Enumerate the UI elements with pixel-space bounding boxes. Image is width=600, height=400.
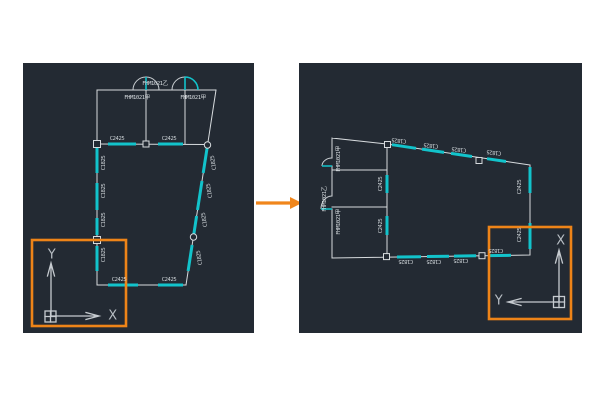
right-arrow-icon bbox=[254, 194, 304, 212]
window-label: C1825 bbox=[206, 183, 214, 198]
wall-junction-markers bbox=[94, 141, 211, 244]
window-label: C1825 bbox=[101, 156, 107, 171]
window-label: C2425 bbox=[378, 219, 384, 234]
door-label: FHM1021乙 bbox=[321, 185, 328, 211]
ucs-label: Y bbox=[494, 294, 503, 309]
door-label: FHM1021甲 bbox=[180, 94, 205, 101]
door-label: FHM1021乙 bbox=[142, 80, 168, 87]
floor-plan-before: FHM1021乙FHM1021甲FHM1021甲C2425C2425C2425C… bbox=[23, 63, 254, 333]
window-label: C1825 bbox=[454, 257, 469, 263]
ucs-label: X bbox=[556, 234, 565, 249]
ucs-axis-icon bbox=[508, 250, 565, 308]
ucs-axis-icon bbox=[45, 263, 99, 322]
window-label: C1825 bbox=[486, 148, 501, 156]
window-label: C1825 bbox=[101, 248, 107, 263]
window-label: C1825 bbox=[489, 247, 504, 253]
ucs-label: X bbox=[108, 309, 117, 324]
cad-viewport-before: FHM1021乙FHM1021甲FHM1021甲C2425C2425C2425C… bbox=[23, 63, 254, 333]
window-label: C2425 bbox=[517, 180, 523, 195]
ucs-label: Y bbox=[47, 248, 56, 263]
door-label: FHM1021甲 bbox=[335, 209, 342, 234]
plan-labels: FHM1021乙FHM1021甲FHM1021甲C2425C2425C2425C… bbox=[47, 80, 218, 324]
window-label: C2425 bbox=[162, 277, 177, 283]
window-label: C1825 bbox=[101, 184, 107, 199]
window-label: C1825 bbox=[451, 145, 466, 153]
window-label: C1825 bbox=[427, 258, 442, 264]
floor-plan-after: FHM1021甲FHM1021乙FHM1021甲C1825C1825C1825C… bbox=[299, 63, 582, 333]
transform-arrow bbox=[254, 194, 304, 212]
window-label: C1825 bbox=[399, 258, 414, 264]
window-label: C1825 bbox=[423, 141, 438, 149]
wall-junction-markers bbox=[384, 142, 486, 260]
window-label: C2425 bbox=[112, 277, 127, 283]
window-label: C1825 bbox=[391, 136, 406, 144]
window-label: C2425 bbox=[517, 228, 523, 243]
window-label: C2425 bbox=[110, 136, 125, 142]
window-segments bbox=[97, 144, 207, 285]
door-label: FHM1021甲 bbox=[335, 146, 342, 171]
window-label: C1825 bbox=[101, 213, 107, 228]
window-label: C1825 bbox=[210, 155, 218, 170]
window-label: C2425 bbox=[378, 177, 384, 192]
ucs-rotation-figure: FHM1021乙FHM1021甲FHM1021甲C2425C2425C2425C… bbox=[0, 0, 600, 400]
window-label: C1825 bbox=[201, 212, 209, 227]
plan-labels: FHM1021甲FHM1021乙FHM1021甲C1825C1825C1825C… bbox=[321, 136, 566, 308]
window-label: C2425 bbox=[162, 136, 177, 142]
window-label: C1825 bbox=[196, 250, 204, 265]
door-label: FHM1021甲 bbox=[124, 94, 149, 101]
cad-viewport-after: FHM1021甲FHM1021乙FHM1021甲C1825C1825C1825C… bbox=[299, 63, 582, 333]
